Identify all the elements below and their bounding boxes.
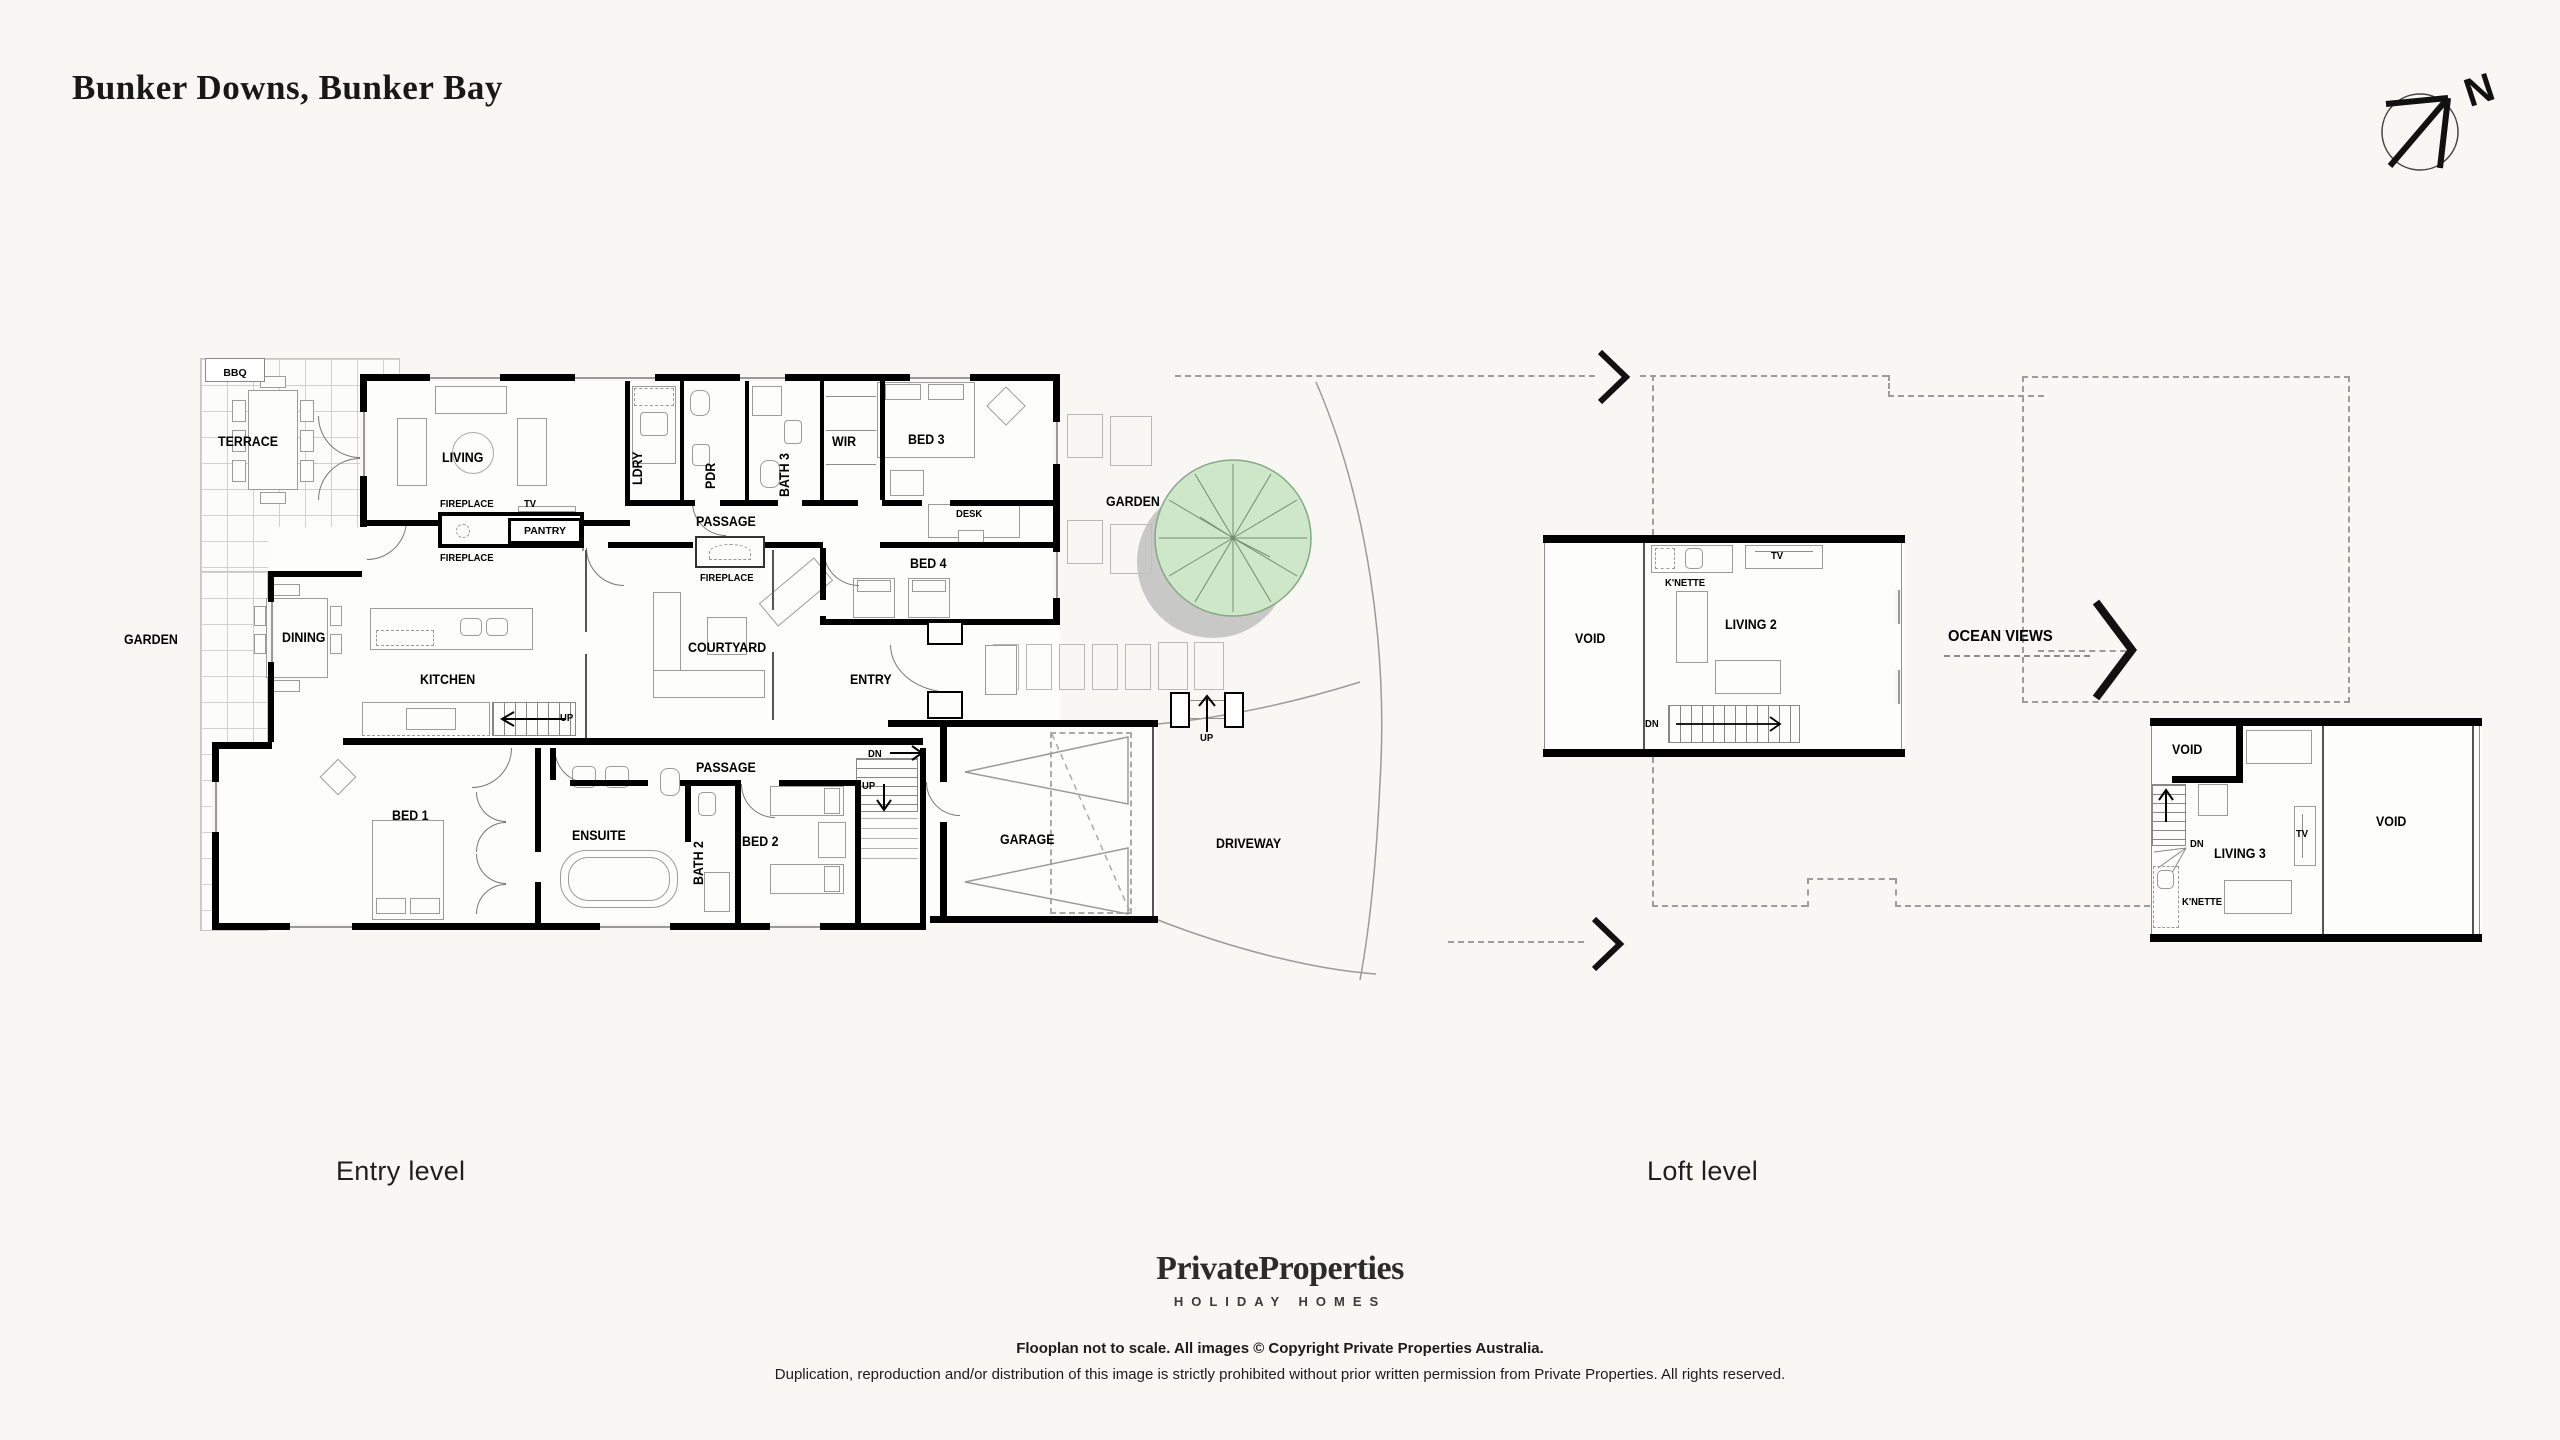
- svg-text:N: N: [2459, 65, 2500, 116]
- brand-block: PrivateProperties HOLIDAY HOMES: [0, 1250, 2560, 1309]
- label-tv: TV: [524, 498, 536, 510]
- footer-line1: Flooplan not to scale. All images © Copy…: [0, 1340, 2560, 1357]
- label-fireplace-courtyard: FIREPLACE: [700, 572, 754, 584]
- chevron-right-icon: [1596, 350, 1636, 406]
- footer-line2: Duplication, reproduction and/or distrib…: [0, 1366, 2560, 1383]
- room-label-pantry: PANTRY: [524, 525, 566, 537]
- room-label-ldry: LDRY: [630, 452, 645, 485]
- room-label-bath3: BATH 3: [777, 453, 792, 497]
- entry-plan-overlay: [120, 352, 1420, 992]
- room-label-terrace: TERRACE: [218, 434, 278, 449]
- label-desk: DESK: [956, 508, 982, 520]
- room-label-bed2: BED 2: [742, 834, 779, 849]
- room-label-bed3: BED 3: [908, 432, 945, 447]
- room-label-living: LIVING: [442, 450, 483, 465]
- room-label-garden-left: GARDEN: [124, 632, 178, 647]
- room-label-bed4: BED 4: [910, 556, 947, 571]
- room-label-garage: GARAGE: [1000, 832, 1055, 847]
- room-label-courtyard: COURTYARD: [688, 640, 766, 655]
- floorplan-page: Bunker Downs, Bunker Bay N: [0, 0, 2560, 1440]
- label-up-driveway: UP: [1200, 732, 1213, 744]
- label-knette-1: K'NETTE: [1665, 577, 1705, 589]
- room-label-void-top: VOID: [2172, 742, 2202, 757]
- label-fireplace-bottom: FIREPLACE: [440, 552, 494, 564]
- room-label-bbq: BBQ: [223, 367, 246, 379]
- label-dn-1: DN: [1645, 718, 1659, 730]
- loft-living3-block: VOID LIVING 3 TV DN K'NETTE VOID: [2150, 718, 2482, 942]
- entry-level-plan: PANTRY: [120, 352, 1420, 992]
- ocean-views-arrow-icon: [2090, 598, 2142, 702]
- brand-tagline: HOLIDAY HOMES: [0, 1294, 2560, 1309]
- room-label-kitchen: KITCHEN: [420, 672, 475, 687]
- room-label-dining: DINING: [282, 630, 325, 645]
- label-dn-stairs: DN: [868, 748, 882, 760]
- room-label-living3: LIVING 3: [2214, 846, 2266, 861]
- room-label-passage-top: PASSAGE: [696, 514, 756, 529]
- room-label-wir: WIR: [832, 434, 856, 449]
- room-label-garden-right: GARDEN: [1106, 494, 1160, 509]
- label-ocean-views: OCEAN VIEWS: [1948, 628, 2053, 646]
- loft-living2-block: VOID K'NETTE TV LIVING 2 DN: [1543, 535, 1905, 757]
- page-title: Bunker Downs, Bunker Bay: [72, 68, 503, 108]
- room-label-bath2: BATH 2: [691, 841, 706, 885]
- label-fireplace-top: FIREPLACE: [440, 498, 494, 510]
- label-tv-1: TV: [1771, 550, 1783, 562]
- loft-level-caption: Loft level: [1647, 1156, 1758, 1187]
- room-label-passage-bottom: PASSAGE: [696, 760, 756, 775]
- label-up-kitchen: UP: [560, 712, 573, 724]
- brand-name: PrivateProperties: [0, 1250, 2560, 1288]
- room-label-driveway: DRIVEWAY: [1216, 836, 1281, 851]
- north-arrow-icon: N: [2378, 58, 2548, 188]
- room-label-pdr: PDR: [703, 463, 718, 489]
- chevron-right-icon: [1590, 917, 1630, 973]
- label-tv-2: TV: [2296, 828, 2308, 840]
- label-knette-2: K'NETTE: [2182, 896, 2222, 908]
- room-label-entry: ENTRY: [850, 672, 892, 687]
- label-up-stairs: UP: [862, 780, 875, 792]
- room-label-bed1: BED 1: [392, 808, 429, 823]
- entry-level-caption: Entry level: [336, 1156, 465, 1187]
- label-dn-2: DN: [2190, 838, 2204, 850]
- roofline-rect: [2022, 376, 2350, 703]
- room-label-void-left: VOID: [1575, 631, 1605, 646]
- room-label-void-right: VOID: [2376, 814, 2406, 829]
- room-label-ensuite: ENSUITE: [572, 828, 626, 843]
- room-label-living2: LIVING 2: [1725, 617, 1777, 632]
